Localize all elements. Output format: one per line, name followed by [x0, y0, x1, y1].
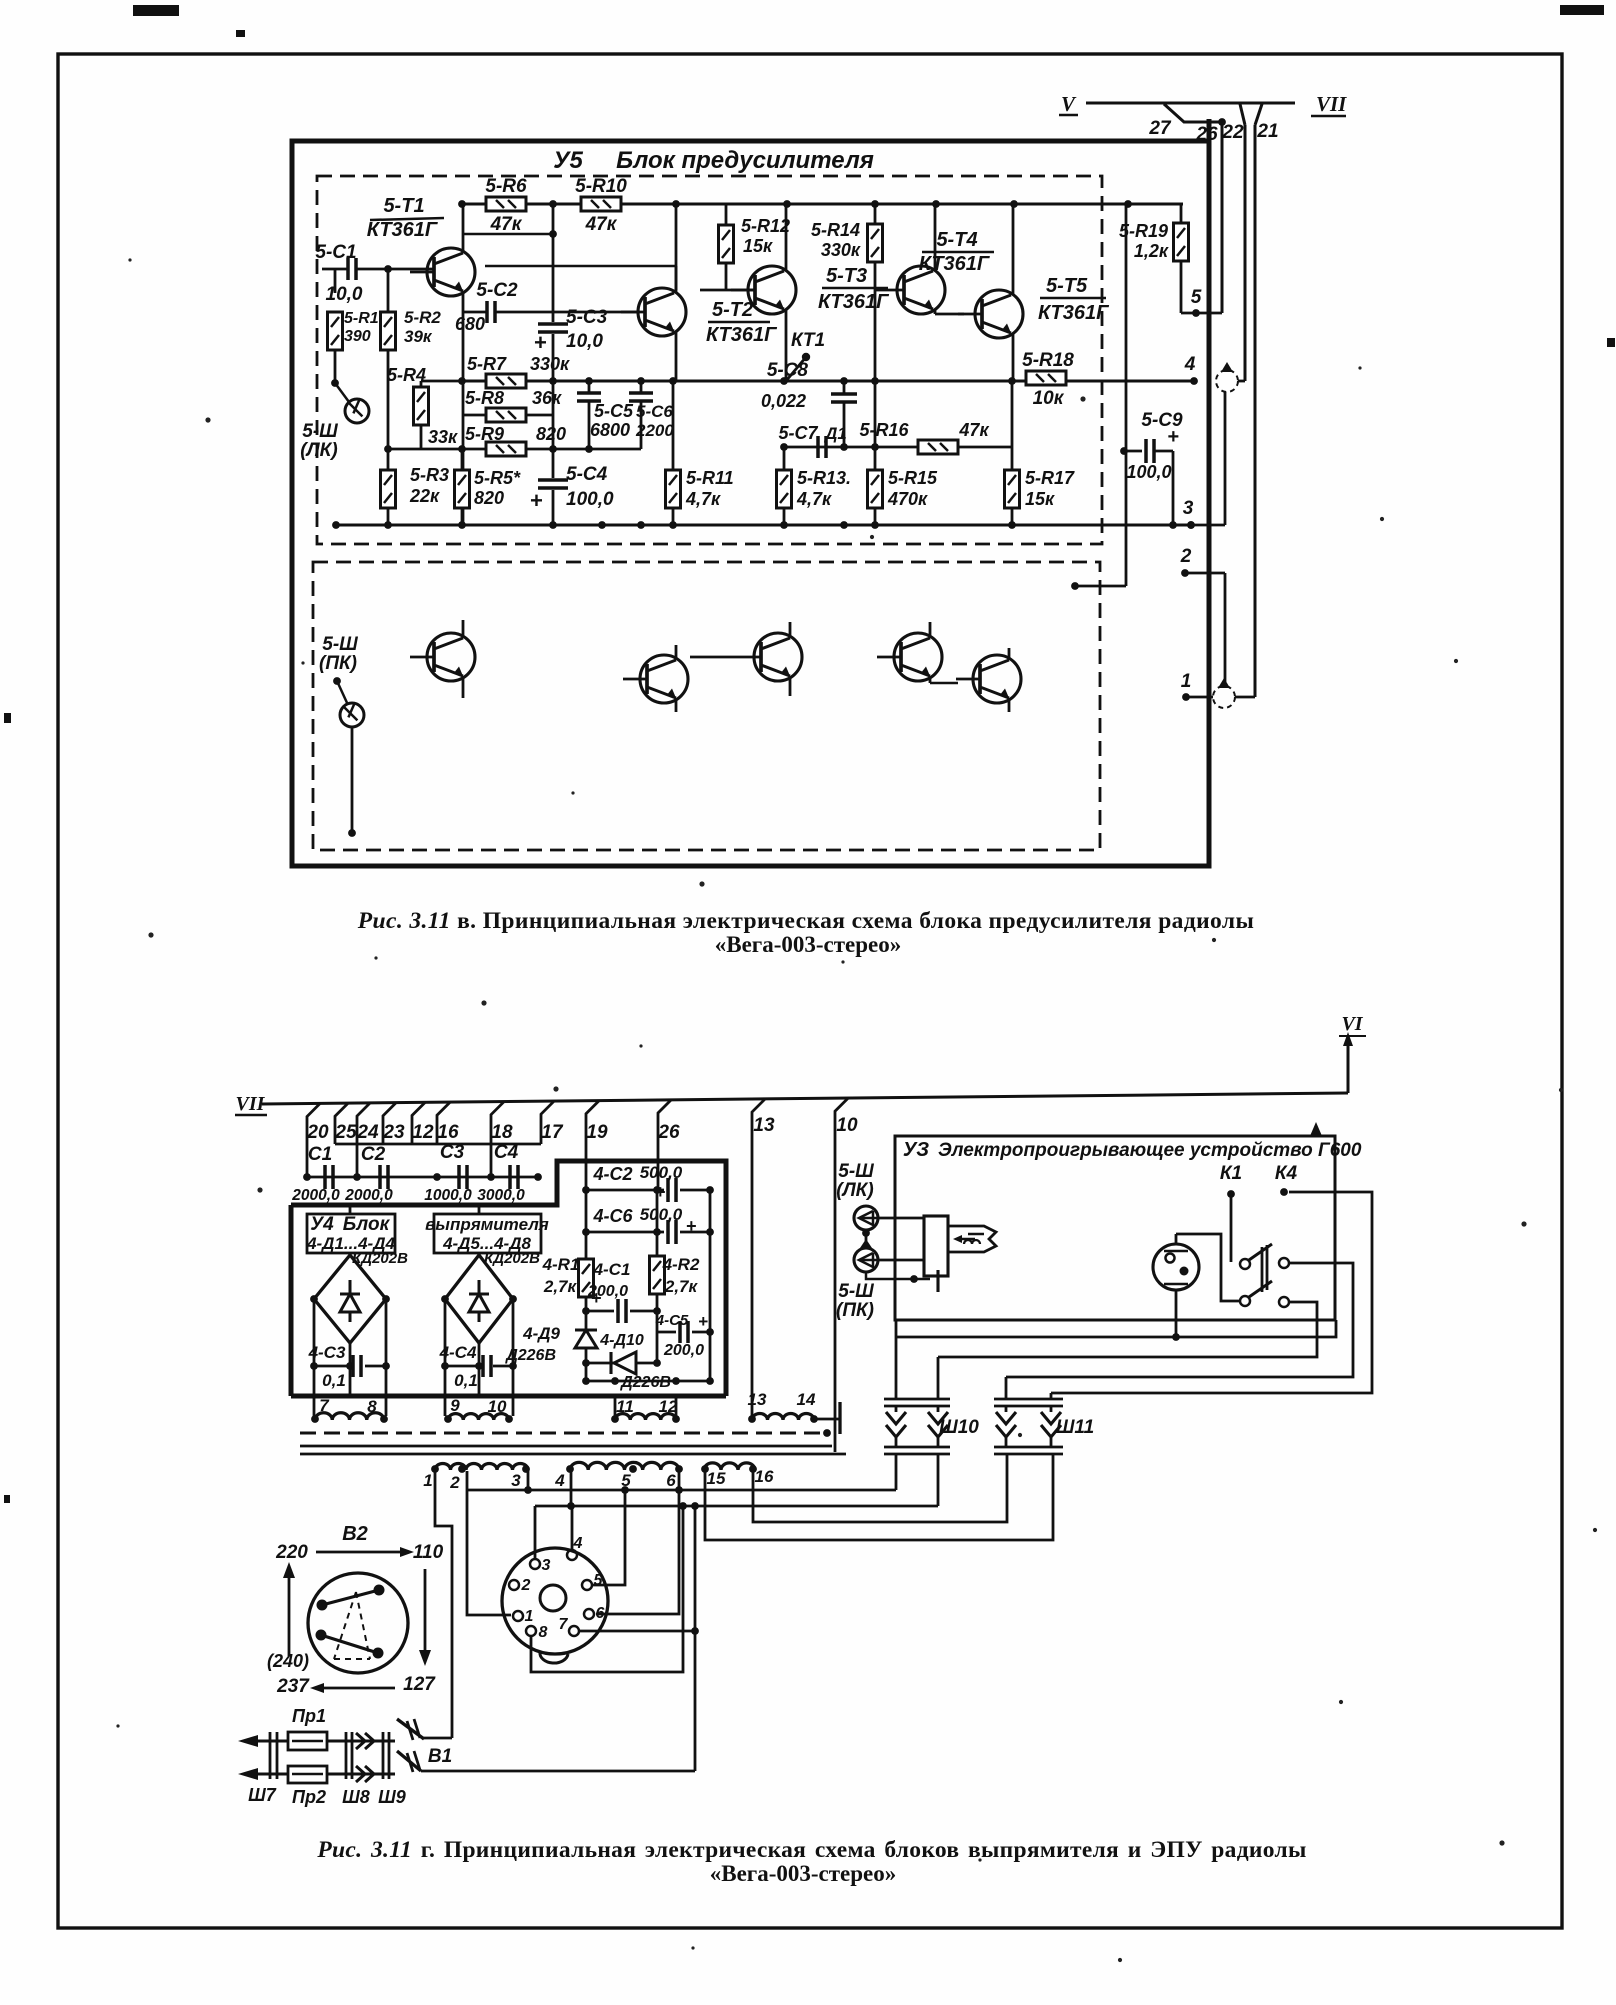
svg-text:5-R17: 5-R17	[1025, 468, 1075, 488]
svg-text:36к: 36к	[532, 388, 562, 408]
svg-text:Блок предусилителя: Блок предусилителя	[616, 147, 874, 174]
svg-text:5-R8: 5-R8	[465, 388, 504, 408]
svg-text:5-Ш: 5-Ш	[838, 1281, 874, 1302]
svg-text:10,0: 10,0	[566, 331, 603, 352]
svg-text:8: 8	[367, 1397, 377, 1416]
svg-text:+: +	[534, 330, 547, 355]
svg-text:20: 20	[306, 1122, 329, 1143]
svg-text:(ПК): (ПК)	[319, 653, 357, 674]
svg-text:5-R9: 5-R9	[465, 424, 504, 444]
svg-text:КД202В: КД202В	[484, 1250, 540, 1267]
svg-text:3: 3	[542, 1557, 551, 1574]
svg-text:5-Т3: 5-Т3	[826, 265, 867, 287]
svg-text:330к: 330к	[530, 354, 570, 374]
svg-text:330к: 330к	[821, 240, 861, 260]
svg-text:17: 17	[541, 1122, 564, 1143]
svg-text:5-R14: 5-R14	[811, 220, 860, 240]
svg-text:+: +	[686, 1216, 697, 1236]
svg-text:16: 16	[755, 1467, 774, 1486]
svg-text:Блок: Блок	[343, 1214, 391, 1235]
svg-text:5-Т4: 5-Т4	[936, 229, 977, 251]
svg-text:820: 820	[536, 424, 566, 444]
svg-text:23: 23	[382, 1122, 405, 1143]
svg-text:4-Д9: 4-Д9	[522, 1324, 560, 1343]
svg-text:5: 5	[1191, 287, 1202, 308]
svg-text:Д226В: Д226В	[619, 1374, 671, 1391]
svg-text:4-С3: 4-С3	[308, 1343, 346, 1362]
svg-text:0,1: 0,1	[454, 1371, 478, 1390]
svg-text:Д1: Д1	[823, 424, 847, 443]
svg-text:5-C8: 5-C8	[767, 360, 809, 381]
svg-text:26: 26	[657, 1122, 680, 1143]
svg-text:КТ1: КТ1	[791, 330, 825, 351]
svg-text:13: 13	[748, 1390, 767, 1409]
svg-text:1,2к: 1,2к	[1134, 241, 1169, 261]
svg-text:«Вега-003-стерео»: «Вега-003-стерео»	[710, 1861, 897, 1886]
svg-text:Ш10: Ш10	[939, 1417, 979, 1438]
svg-text:5-R2: 5-R2	[404, 308, 441, 327]
svg-text:(240): (240)	[267, 1651, 309, 1671]
svg-text:16: 16	[437, 1122, 459, 1143]
svg-text:5-R7: 5-R7	[467, 354, 507, 374]
svg-text:27: 27	[1148, 118, 1172, 139]
svg-text:47к: 47к	[490, 214, 523, 235]
svg-text:22к: 22к	[409, 486, 440, 506]
svg-text:УЗ: УЗ	[903, 1139, 929, 1161]
svg-text:237: 237	[276, 1676, 310, 1697]
svg-text:5-R13.: 5-R13.	[797, 468, 851, 488]
svg-text:КТ361Г: КТ361Г	[919, 253, 991, 275]
svg-text:5-R15: 5-R15	[888, 468, 938, 488]
svg-text:+: +	[655, 1182, 666, 1202]
svg-text:Рис. 3.11 в. Принципиальная эл: Рис. 3.11 в. Принципиальная электрическа…	[357, 908, 1254, 934]
svg-text:5-R16: 5-R16	[859, 420, 909, 440]
svg-text:4-C2: 4-C2	[592, 1164, 632, 1184]
svg-text:10к: 10к	[1033, 388, 1065, 409]
svg-text:Ш11: Ш11	[1056, 1417, 1094, 1438]
svg-text:2,7к: 2,7к	[543, 1277, 578, 1296]
svg-text:Пр2: Пр2	[292, 1787, 326, 1807]
svg-text:15к: 15к	[1025, 489, 1055, 509]
svg-text:680: 680	[455, 314, 485, 334]
svg-text:500,0: 500,0	[640, 1205, 683, 1224]
svg-text:5: 5	[594, 1572, 604, 1589]
svg-text:2000,0: 2000,0	[344, 1187, 393, 1204]
svg-text:(ПК): (ПК)	[836, 1300, 874, 1321]
svg-text:6: 6	[596, 1605, 605, 1622]
svg-text:2: 2	[449, 1473, 460, 1492]
svg-text:47к: 47к	[585, 214, 618, 235]
svg-text:4,7к: 4,7к	[796, 489, 832, 509]
svg-text:5-R4: 5-R4	[387, 365, 426, 385]
svg-text:4-С5: 4-С5	[655, 1312, 689, 1329]
svg-text:2: 2	[521, 1577, 531, 1594]
svg-text:+: +	[698, 1312, 708, 1331]
svg-text:100,0: 100,0	[1126, 462, 1171, 482]
svg-text:21: 21	[1256, 121, 1278, 142]
svg-text:C4: C4	[494, 1142, 519, 1163]
svg-text:10,0: 10,0	[326, 284, 363, 305]
svg-text:6: 6	[666, 1471, 676, 1490]
svg-text:У4: У4	[310, 1214, 334, 1235]
svg-text:1: 1	[423, 1471, 432, 1490]
svg-text:5-R18: 5-R18	[1022, 350, 1074, 371]
svg-text:4: 4	[1184, 354, 1196, 375]
svg-text:C1: C1	[308, 1144, 332, 1165]
svg-text:5-С7: 5-С7	[778, 423, 818, 443]
svg-text:(ЛК): (ЛК)	[836, 1180, 873, 1201]
svg-text:(ЛК): (ЛК)	[300, 440, 337, 461]
svg-text:5-R5*: 5-R5*	[474, 468, 521, 488]
svg-text:14: 14	[797, 1390, 816, 1409]
svg-text:4-R1: 4-R1	[542, 1255, 580, 1274]
svg-text:5-С6: 5-С6	[636, 402, 673, 421]
svg-text:2000,0: 2000,0	[291, 1187, 340, 1204]
svg-text:4-R2: 4-R2	[662, 1255, 700, 1274]
svg-text:200,0: 200,0	[663, 1342, 704, 1359]
svg-text:КТ361Г: КТ361Г	[1038, 302, 1110, 324]
svg-text:КТ361Г: КТ361Г	[367, 219, 439, 241]
svg-text:Пр1: Пр1	[292, 1706, 326, 1726]
svg-text:2: 2	[1180, 546, 1192, 567]
svg-text:13: 13	[753, 1115, 775, 1136]
svg-text:8: 8	[539, 1624, 548, 1641]
svg-text:10: 10	[836, 1115, 858, 1136]
svg-text:B1: B1	[428, 1746, 452, 1767]
svg-text:У5: У5	[553, 147, 583, 174]
svg-text:VII: VII	[236, 1093, 266, 1115]
svg-text:+: +	[591, 1288, 602, 1308]
svg-text:4: 4	[573, 1535, 583, 1552]
svg-text:4-Д10: 4-Д10	[599, 1332, 644, 1349]
svg-text:V: V	[1061, 92, 1077, 116]
svg-text:+: +	[1167, 426, 1179, 448]
svg-text:25: 25	[334, 1122, 357, 1143]
svg-text:500,0: 500,0	[640, 1163, 683, 1182]
svg-text:3: 3	[1183, 498, 1194, 519]
svg-text:5-C2: 5-C2	[476, 280, 518, 301]
svg-text:390: 390	[344, 328, 371, 345]
svg-text:C3: C3	[440, 1142, 465, 1163]
svg-text:КТ361Г: КТ361Г	[706, 324, 778, 346]
svg-text:0,1: 0,1	[322, 1371, 346, 1390]
svg-text:18: 18	[491, 1122, 513, 1143]
svg-text:5-R12: 5-R12	[741, 216, 790, 236]
svg-text:КТ361Г: КТ361Г	[818, 291, 890, 313]
svg-text:5-R1: 5-R1	[344, 310, 379, 327]
svg-text:5-Т2: 5-Т2	[712, 299, 753, 321]
svg-text:9: 9	[450, 1396, 460, 1415]
svg-text:0,022: 0,022	[761, 391, 806, 411]
svg-text:15: 15	[707, 1469, 726, 1488]
svg-text:15к: 15к	[743, 236, 773, 256]
svg-text:47к: 47к	[958, 420, 989, 440]
svg-text:2,7к: 2,7к	[664, 1277, 699, 1296]
svg-text:К4: К4	[1275, 1163, 1298, 1184]
svg-text:3000,0: 3000,0	[477, 1187, 525, 1204]
svg-text:5-C4: 5-C4	[566, 464, 608, 485]
svg-text:7: 7	[559, 1616, 569, 1633]
svg-text:5-R6: 5-R6	[485, 176, 527, 197]
svg-text:+: +	[530, 488, 543, 513]
svg-text:820: 820	[474, 488, 504, 508]
svg-text:VII: VII	[1316, 92, 1347, 116]
svg-text:24: 24	[356, 1122, 379, 1143]
svg-text:11: 11	[616, 1397, 634, 1416]
svg-text:Электропроигрывающее устройств: Электропроигрывающее устройство Г600	[938, 1140, 1362, 1161]
svg-text:6800: 6800	[590, 420, 630, 440]
svg-text:1000,0: 1000,0	[424, 1187, 472, 1204]
svg-text:33к: 33к	[428, 427, 458, 447]
svg-text:22: 22	[1221, 122, 1244, 143]
svg-text:470к: 470к	[887, 489, 928, 509]
svg-text:5-Ш: 5-Ш	[302, 421, 338, 442]
svg-text:B2: B2	[342, 1523, 368, 1545]
svg-text:1: 1	[1181, 671, 1192, 692]
svg-text:5-Т5: 5-Т5	[1046, 275, 1088, 297]
svg-text:2200: 2200	[635, 421, 674, 440]
svg-text:5-C3: 5-C3	[566, 307, 608, 328]
svg-text:4-C1: 4-C1	[593, 1260, 631, 1279]
svg-text:5-R11: 5-R11	[686, 468, 734, 488]
svg-text:5-Ш: 5-Ш	[838, 1161, 874, 1182]
svg-text:VI: VI	[1341, 1013, 1363, 1035]
svg-text:«Вега-003-стерео»: «Вега-003-стерео»	[715, 932, 902, 957]
svg-text:Д226В: Д226В	[504, 1347, 556, 1364]
svg-text:Ш9: Ш9	[378, 1787, 406, 1807]
svg-text:12: 12	[412, 1122, 434, 1143]
svg-text:19: 19	[586, 1122, 608, 1143]
svg-text:3: 3	[511, 1471, 521, 1490]
svg-text:4-С6: 4-С6	[592, 1206, 633, 1226]
svg-text:Рис. 3.11 г. Принципиальная эл: Рис. 3.11 г. Принципиальная электрическа…	[316, 1837, 1306, 1863]
svg-text:C2: C2	[361, 1144, 386, 1165]
svg-text:4,7к: 4,7к	[685, 489, 721, 509]
svg-text:127: 127	[403, 1674, 436, 1695]
svg-text:1: 1	[525, 1608, 534, 1625]
svg-text:КД202В: КД202В	[352, 1250, 408, 1267]
svg-text:выпрямителя: выпрямителя	[425, 1215, 549, 1234]
svg-text:Ш8: Ш8	[342, 1787, 370, 1807]
svg-text:100,0: 100,0	[566, 489, 614, 510]
svg-text:К1: К1	[1220, 1163, 1242, 1184]
svg-text:4: 4	[554, 1471, 565, 1490]
svg-text:5-R3: 5-R3	[410, 465, 449, 485]
svg-text:5-Ш: 5-Ш	[322, 634, 358, 655]
svg-text:5-R10: 5-R10	[575, 176, 627, 197]
svg-text:10: 10	[488, 1397, 507, 1416]
svg-text:39к: 39к	[404, 327, 433, 346]
svg-text:5-C5: 5-C5	[594, 401, 634, 421]
svg-text:220: 220	[275, 1542, 308, 1563]
svg-text:5-C1: 5-C1	[315, 242, 356, 263]
svg-text:Ш7: Ш7	[248, 1785, 277, 1805]
svg-text:110: 110	[413, 1542, 444, 1563]
svg-text:5-Т1: 5-Т1	[383, 195, 424, 217]
svg-text:4-С4: 4-С4	[439, 1343, 477, 1362]
svg-text:7: 7	[319, 1396, 330, 1415]
